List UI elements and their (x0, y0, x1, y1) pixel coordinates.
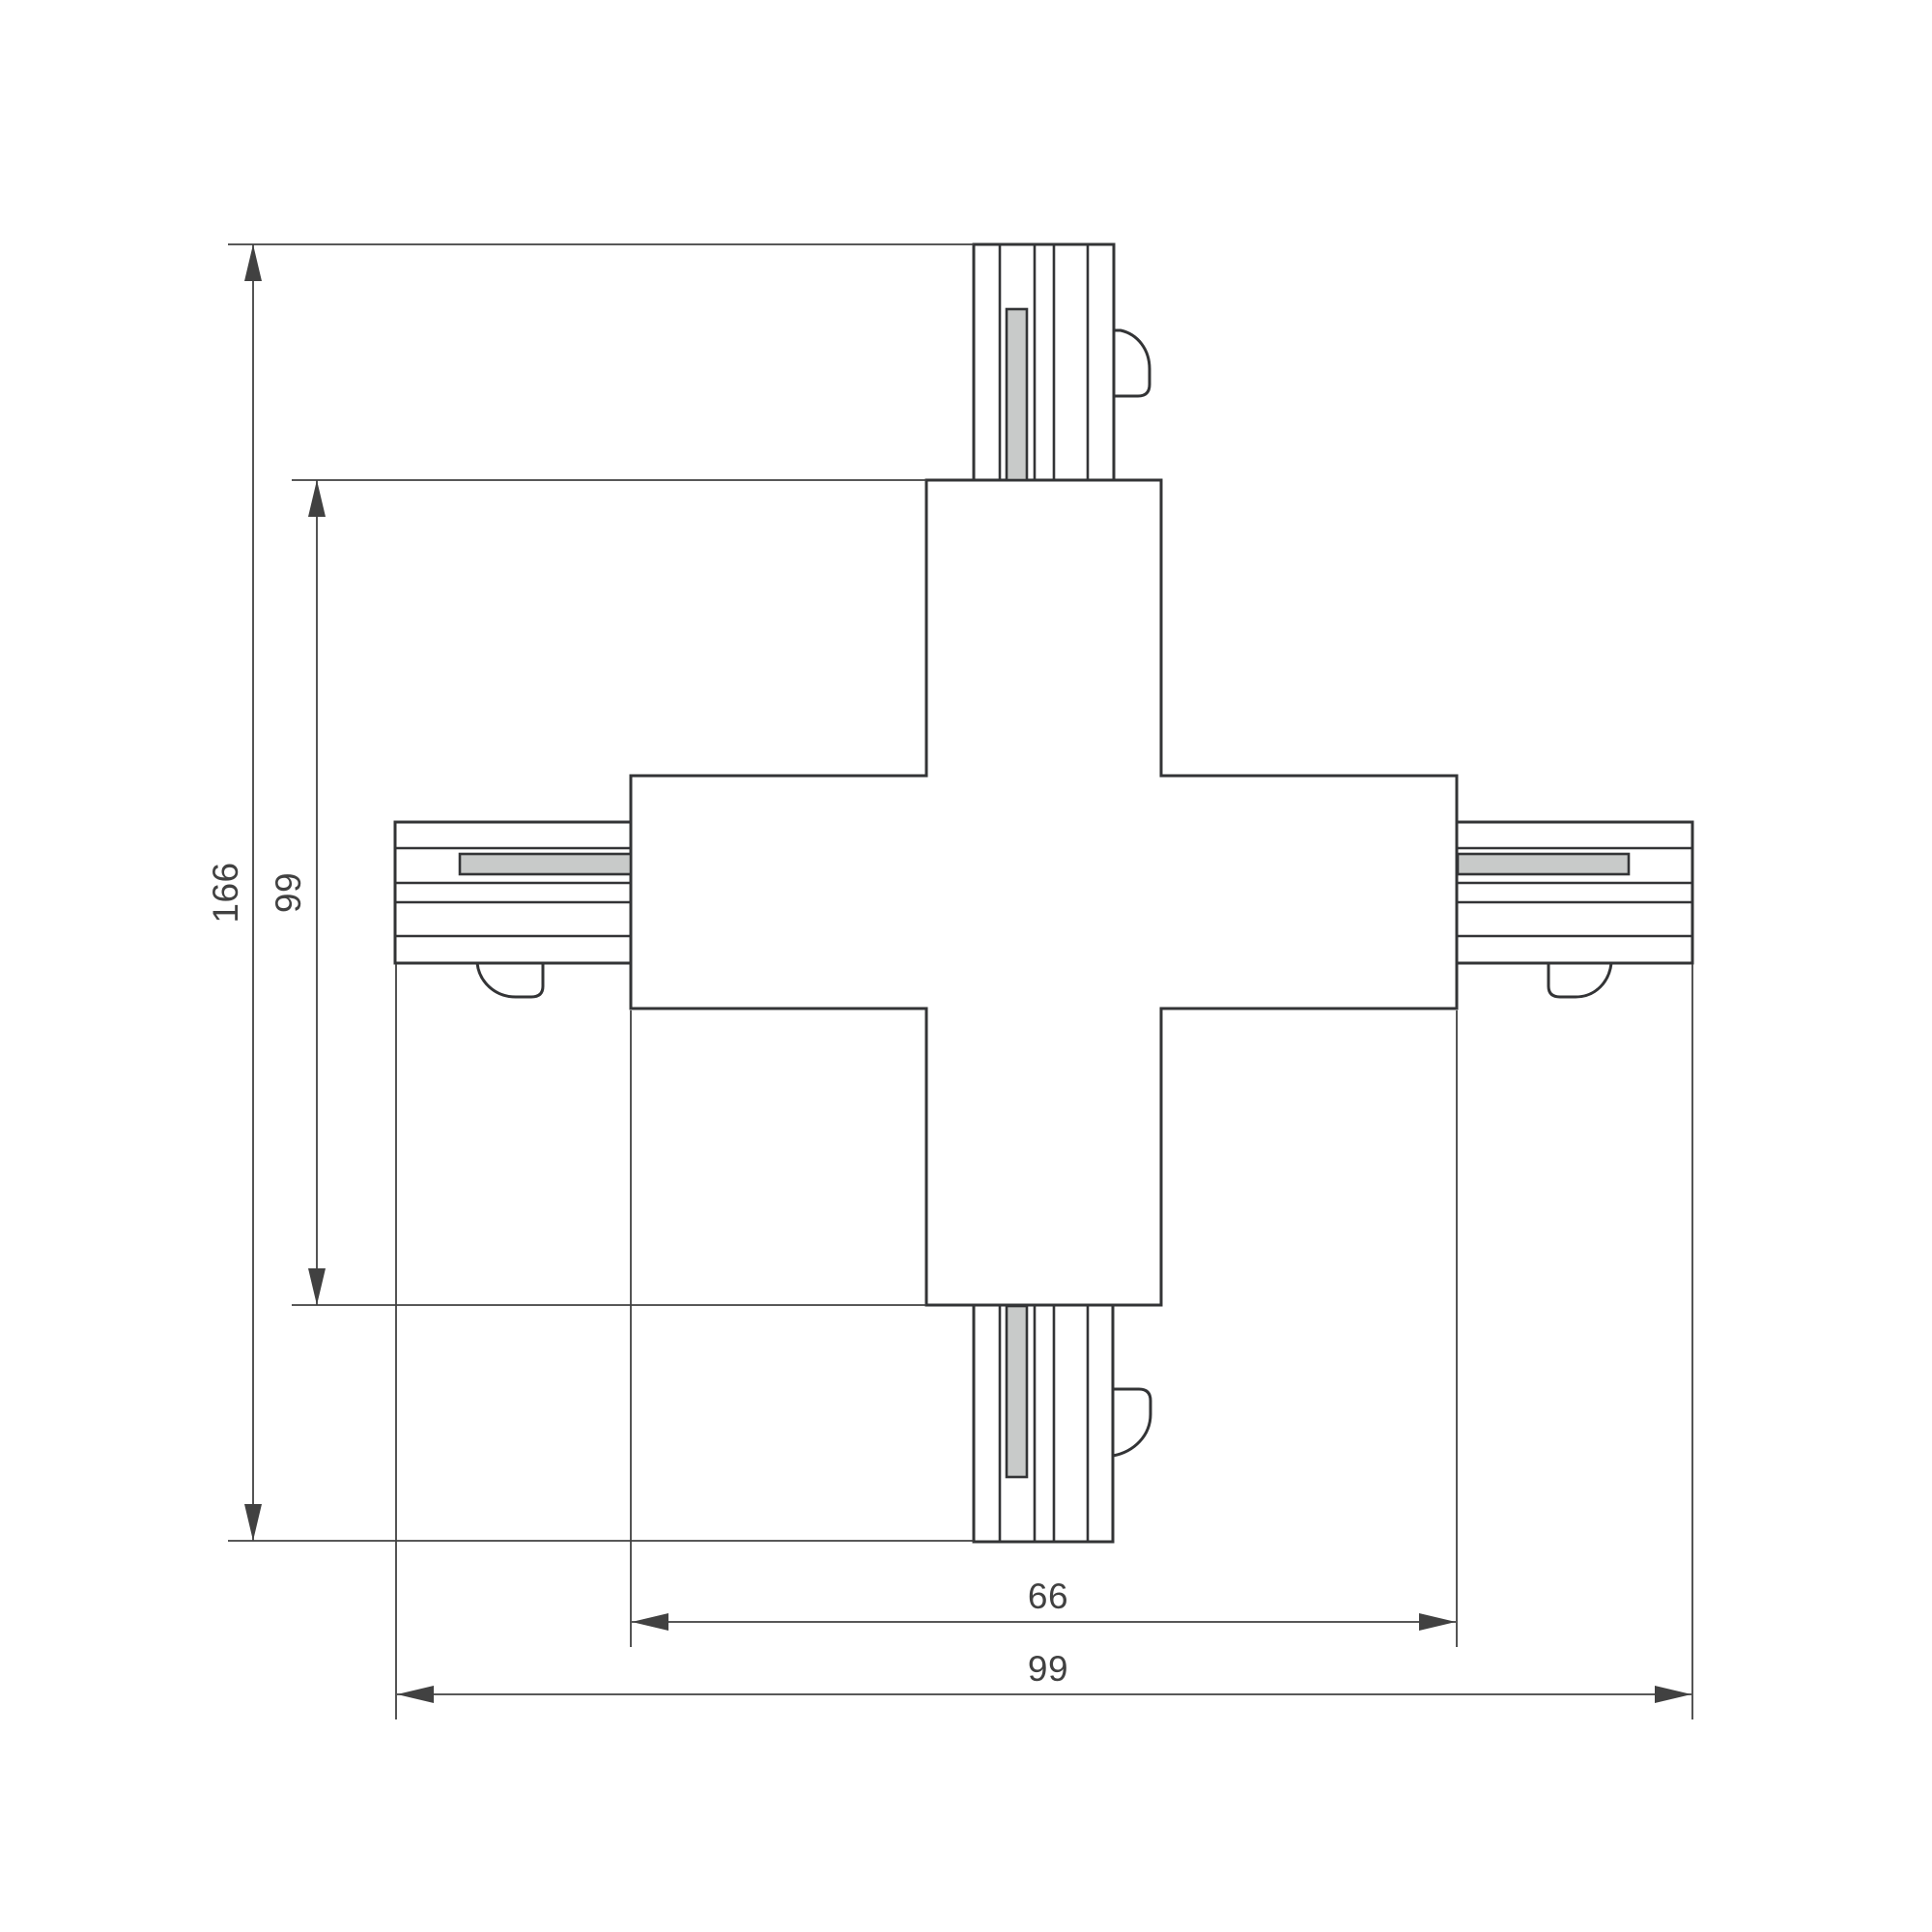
track-right-body (1457, 822, 1692, 963)
track-left-body (395, 822, 631, 963)
connector-body-outline (631, 480, 1457, 1305)
track-left-latch-tab (477, 963, 543, 997)
drawing-page: 166 99 66 99 (0, 0, 1932, 1932)
arrowhead-down (308, 1268, 326, 1305)
dim-label-body-height: 99 (269, 872, 308, 913)
track-right (1457, 822, 1692, 997)
track-right-contact-strip (1458, 854, 1629, 874)
arrowhead-up (308, 480, 326, 517)
dim-label-overall-width: 99 (1028, 1649, 1068, 1689)
arrowhead-right (1655, 1686, 1691, 1703)
arrowhead-down (244, 1504, 262, 1541)
track-bottom-latch-tab (1113, 1389, 1151, 1456)
arrowhead-up (244, 244, 262, 281)
dim-label-body-width: 66 (1028, 1577, 1068, 1616)
track-left (395, 822, 631, 997)
technical-drawing-canvas: 166 99 66 99 (0, 0, 1932, 1932)
track-top-contact-strip (1007, 309, 1027, 480)
arrowhead-left (397, 1686, 434, 1703)
dim-label-overall-height: 166 (206, 862, 245, 923)
track-bottom-contact-strip (1007, 1306, 1027, 1477)
track-top-latch-tab (1114, 330, 1150, 396)
arrowhead-right (1419, 1613, 1456, 1631)
track-bottom (974, 1305, 1151, 1542)
track-bottom-body (974, 1305, 1113, 1542)
track-right-latch-tab (1548, 963, 1611, 997)
arrowhead-left (632, 1613, 668, 1631)
track-top (974, 244, 1150, 480)
track-top-body (974, 244, 1114, 480)
track-left-contact-strip (460, 854, 631, 874)
